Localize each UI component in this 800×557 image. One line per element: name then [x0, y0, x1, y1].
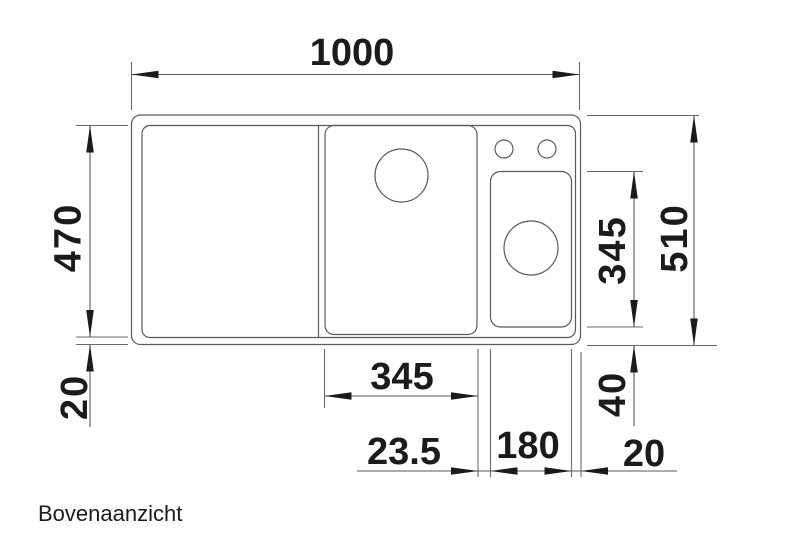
dim-label-overall-width: 1000 — [310, 32, 395, 74]
tap-hole-left — [495, 140, 513, 158]
view-caption: Bovenaanzicht — [38, 501, 182, 526]
arrowhead-right-rim — [581, 467, 608, 475]
main-bowl-drain-hole — [375, 149, 428, 202]
technical-drawing-canvas: 1000 470 20 510 345 40 345 23.5 180 20 B… — [0, 0, 800, 557]
arrowhead-gap-left — [451, 467, 478, 475]
sink-rim-inner-edge — [142, 126, 576, 338]
arrowhead-depth-bottom — [690, 319, 698, 346]
arrowhead-width-left — [132, 71, 159, 79]
main-bowl-edge — [325, 126, 477, 335]
arrowhead-inner-depth-bottom — [86, 310, 94, 337]
dim-label-bottom-rim: 20 — [54, 374, 96, 420]
dim-label-main-bowl-width: 345 — [370, 356, 433, 398]
dim-label-side-bowl-width: 180 — [496, 425, 559, 467]
arrowhead-bottom-rim — [86, 345, 94, 372]
dim-label-inner-depth: 470 — [48, 203, 90, 272]
arrowhead-sidebowl-width-right — [545, 467, 572, 475]
side-bowl-drain-hole — [504, 221, 558, 275]
sink-dimension-drawing: 1000 470 20 510 345 40 345 23.5 180 20 B… — [0, 0, 800, 557]
arrowhead-gap-right — [491, 467, 518, 475]
dim-label-side-bowl-depth: 345 — [592, 215, 634, 284]
arrowhead-sidebowl-offset — [630, 346, 638, 373]
arrowhead-mainbowl-right — [451, 392, 478, 400]
dim-label-right-rim: 20 — [623, 433, 665, 475]
arrowhead-width-right — [553, 71, 580, 79]
arrowhead-mainbowl-left — [325, 392, 352, 400]
arrowhead-depth-top — [690, 116, 698, 143]
dim-label-overall-depth: 510 — [654, 203, 696, 272]
side-bowl-edge — [491, 172, 572, 328]
arrowhead-sidebowl-depth-bottom — [630, 300, 638, 327]
arrowhead-inner-depth-top — [86, 126, 94, 153]
tap-hole-right — [538, 140, 556, 158]
dim-label-bowl-gap: 23.5 — [367, 431, 441, 473]
dim-label-side-bowl-bottom-offset: 40 — [592, 371, 634, 417]
arrowhead-sidebowl-depth-top — [630, 172, 638, 199]
